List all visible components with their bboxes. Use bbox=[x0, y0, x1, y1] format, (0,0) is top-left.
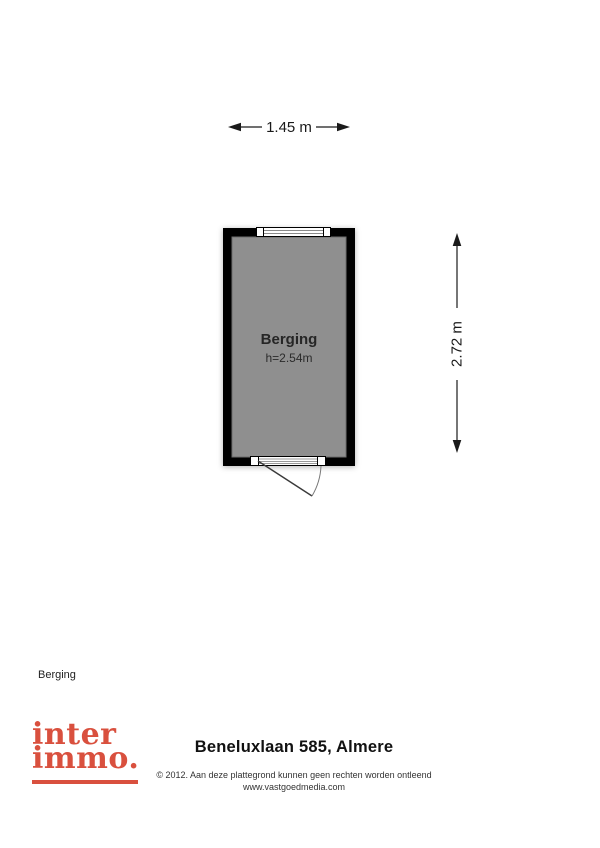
door-swing-arc bbox=[312, 466, 321, 496]
width-dimension: 1.45 m bbox=[228, 119, 350, 136]
window bbox=[257, 228, 331, 237]
room-height-label: h=2.54m bbox=[265, 351, 312, 365]
window-frame bbox=[257, 228, 331, 237]
height-dimension: 2.72 m bbox=[448, 233, 465, 453]
door-jamb-left bbox=[251, 457, 259, 466]
room-name-label: Berging bbox=[261, 331, 318, 348]
door-leaf bbox=[258, 461, 312, 496]
window-jamb-left bbox=[257, 228, 264, 237]
arrow-down-icon bbox=[453, 440, 462, 453]
copyright-text: © 2012. Aan deze plattegrond kunnen geen… bbox=[0, 770, 588, 780]
website-text: www.vastgoedmedia.com bbox=[0, 782, 588, 792]
door-jamb-right bbox=[318, 457, 326, 466]
height-dimension-label: 2.72 m bbox=[448, 321, 465, 367]
floorplan-page: 1.45 m Berging bbox=[0, 0, 600, 848]
arrow-left-icon bbox=[228, 123, 241, 132]
arrow-right-icon bbox=[337, 123, 350, 132]
room-legend-label: Berging bbox=[38, 669, 76, 681]
width-dimension-label: 1.45 m bbox=[266, 119, 312, 136]
floor-plan: 1.45 m Berging bbox=[0, 0, 600, 600]
door bbox=[251, 457, 326, 497]
address-title: Beneluxlaan 585, Almere bbox=[0, 738, 588, 757]
arrow-up-icon bbox=[453, 233, 462, 246]
footer-title-block: Beneluxlaan 585, Almere © 2012. Aan deze… bbox=[0, 738, 588, 792]
window-jamb-right bbox=[324, 228, 331, 237]
